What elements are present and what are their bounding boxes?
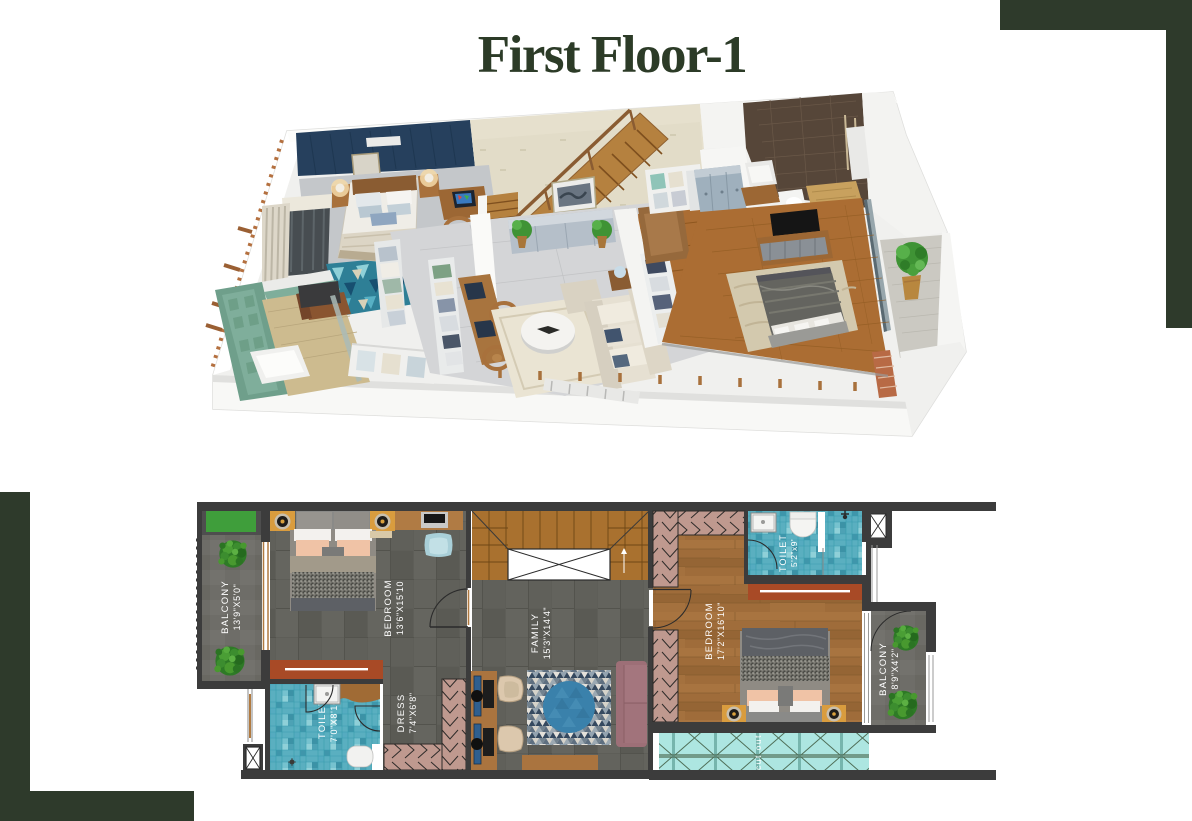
svg-text:DRESS: DRESS (396, 694, 407, 733)
svg-text:TOILET: TOILET (778, 534, 788, 572)
svg-text:13'9"X5'0": 13'9"X5'0" (232, 584, 242, 631)
svg-text:TOILET: TOILET (317, 699, 328, 739)
svg-text:8'9"X4'2": 8'9"X4'2" (890, 648, 900, 689)
svg-text:cut out: cut out (753, 734, 763, 770)
svg-text:5'2"x9': 5'2"x9' (789, 539, 799, 567)
svg-text:13'6"X15'10: 13'6"X15'10 (395, 581, 405, 635)
svg-text:FAMILY: FAMILY (530, 613, 541, 653)
svg-text:BALCONY: BALCONY (878, 642, 889, 696)
svg-text:17'2"X16'10": 17'2"X16'10" (716, 602, 726, 660)
svg-text:BEDROOM: BEDROOM (704, 602, 715, 660)
svg-text:BALCONY: BALCONY (220, 580, 231, 634)
svg-text:7'4"X6'8": 7'4"X6'8" (408, 692, 418, 733)
svg-text:BEDROOM: BEDROOM (383, 579, 394, 637)
svg-text:15'3"X14'4": 15'3"X14'4" (542, 607, 552, 659)
svg-text:First Floor-1: First Floor-1 (478, 26, 746, 84)
